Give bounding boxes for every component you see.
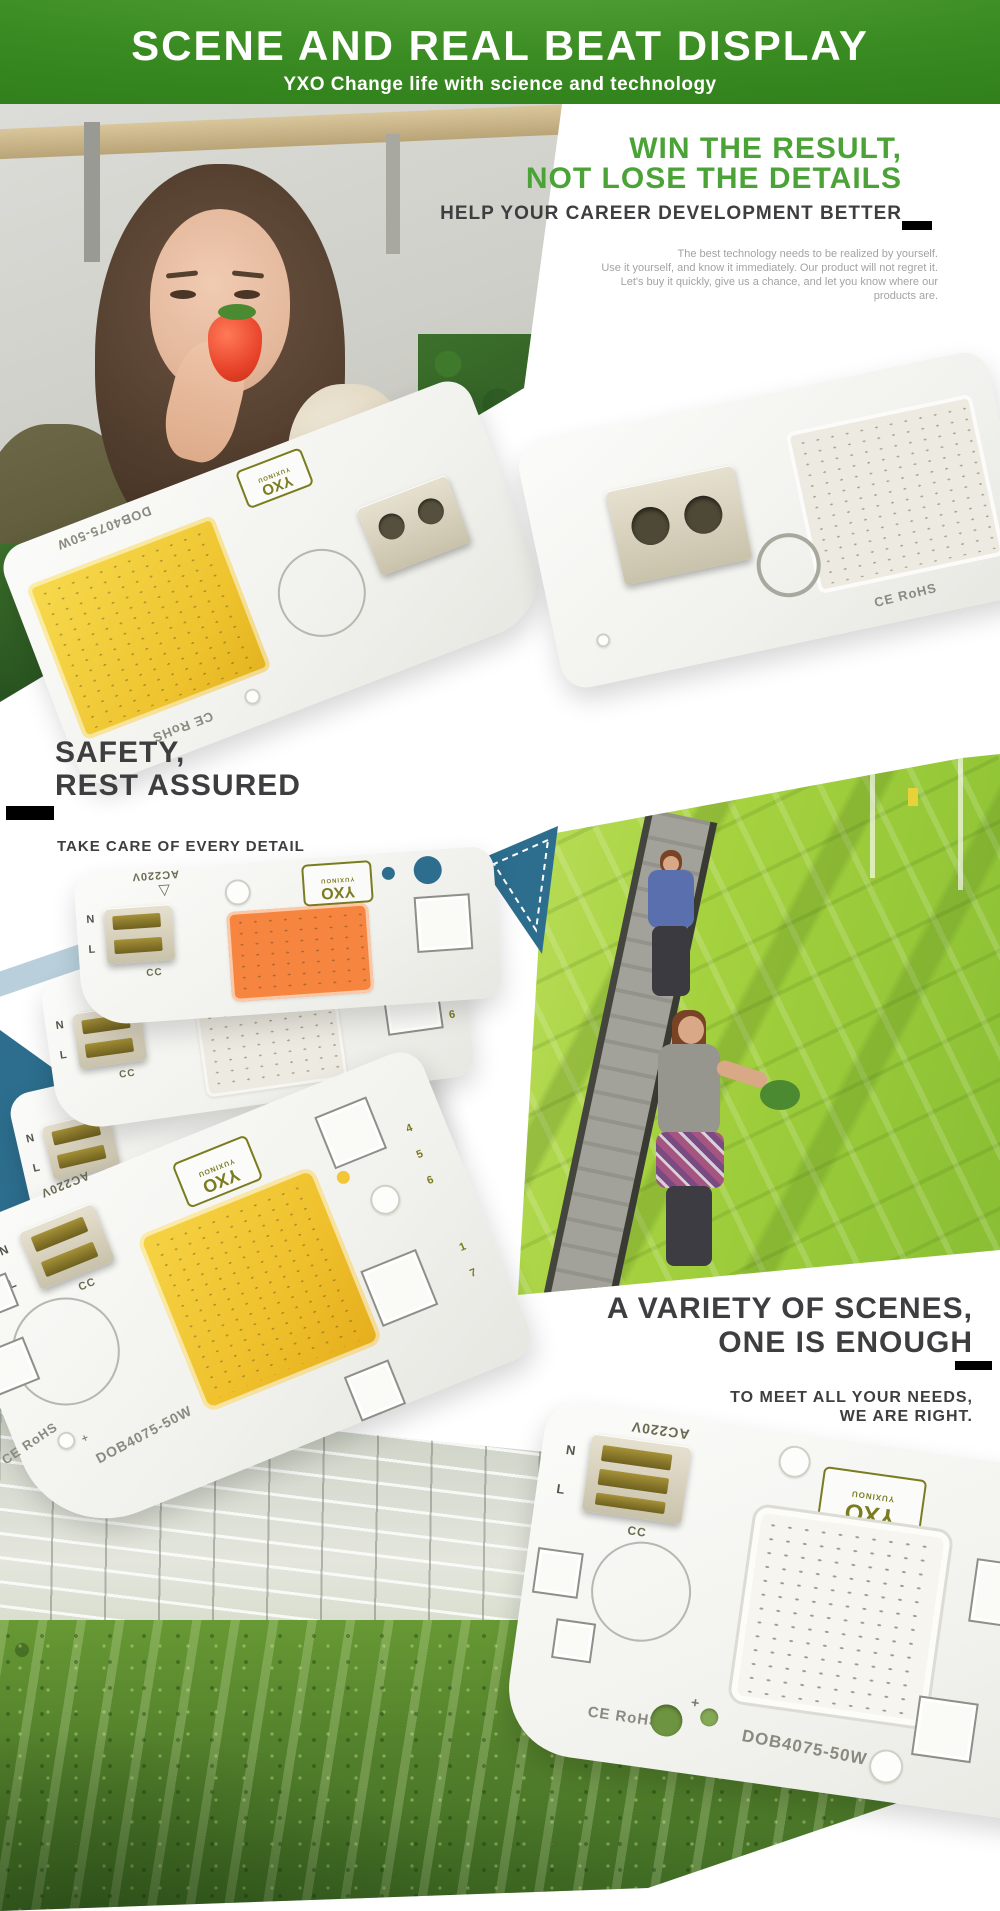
terminal-hole	[414, 495, 448, 529]
greenhouse-post	[386, 134, 400, 254]
cc-label: CC	[627, 1523, 648, 1540]
led-dot-grid	[36, 525, 261, 730]
terminal-slot	[112, 913, 161, 930]
l-label: L	[59, 1049, 67, 1062]
greenhouse-post	[84, 122, 100, 262]
regulator-mark: ▽	[158, 880, 171, 899]
n-label: N	[25, 1132, 35, 1145]
safety-headline: SAFETY, REST ASSURED	[55, 736, 301, 802]
solder-pad	[551, 1618, 596, 1663]
stacked-module-1: N L AC220V ▽ CC YXO YUXINOU	[73, 846, 503, 1027]
terminal-block	[582, 1433, 692, 1524]
cob-patch-orange	[226, 902, 374, 1002]
l-label: L	[556, 1481, 566, 1497]
underscore-accent	[955, 1361, 992, 1370]
variety-headline-line2: ONE IS ENOUGH	[607, 1326, 973, 1360]
cc-label: CC	[146, 967, 163, 979]
top-banner: SCENE AND REAL BEAT DISPLAY YXO Change l…	[0, 0, 1000, 104]
component-footprint-circle	[265, 536, 379, 650]
variety-tagline-block: TO MEET ALL YOUR NEEDS, WE ARE RIGHT.	[730, 1388, 973, 1426]
through-hole-showing-field	[699, 1707, 719, 1727]
variety-tagline-line1: TO MEET ALL YOUR NEEDS,	[730, 1388, 973, 1407]
hero-headline: WIN THE RESULT, NOT LOSE THE DETAILS	[526, 134, 902, 194]
terminal-hole	[628, 503, 673, 548]
variety-headline-line1: A VARIETY OF SCENES,	[607, 1292, 973, 1326]
model-label: DOB4075-50W	[740, 1726, 869, 1770]
gardener-shirt	[648, 870, 694, 928]
gardener-pants	[666, 1186, 712, 1266]
terminal-hole	[375, 510, 409, 544]
eye	[234, 290, 260, 299]
terminal-slot	[601, 1445, 673, 1471]
safety-headline-line1: SAFETY,	[55, 736, 301, 769]
mounting-hole	[595, 632, 612, 649]
component-footprint-circle	[585, 1535, 698, 1648]
paragraph-line: products are.	[601, 289, 938, 303]
cc-label: CC	[118, 1068, 136, 1081]
terminal-slot	[85, 1038, 134, 1059]
terminal-hole	[681, 492, 726, 537]
safety-tagline: TAKE CARE OF EVERY DETAIL	[57, 838, 305, 855]
variety-tagline-line2: WE ARE RIGHT.	[730, 1407, 973, 1426]
banner-title: SCENE AND REAL BEAT DISPLAY	[0, 22, 1000, 70]
n-label: N	[565, 1442, 576, 1458]
solder-pad	[414, 893, 474, 953]
plus-mark: +	[690, 1694, 700, 1711]
n-label: N	[86, 913, 95, 926]
hero-headline-line2: NOT LOSE THE DETAILS	[526, 164, 902, 194]
through-hole-showing-field	[648, 1702, 684, 1738]
paragraph-line: The best technology needs to be realized…	[601, 247, 938, 261]
terminal-block	[605, 465, 752, 586]
cert-label: CE RoHS	[873, 580, 939, 610]
yellow-marker-flag	[908, 788, 918, 806]
paragraph-line: Use it yourself, and know it immediately…	[601, 261, 938, 275]
solder-pad	[911, 1695, 979, 1763]
hero-paragraph: The best technology needs to be realized…	[601, 247, 938, 303]
underscore-accent	[902, 221, 932, 230]
terminal-slot	[114, 937, 163, 954]
gardener-pants	[652, 926, 690, 996]
hero-subheadline: HELP YOUR CAREER DEVELOPMENT BETTER	[440, 203, 902, 225]
led-dot-grid	[233, 909, 368, 996]
cc-label: CC	[77, 1276, 98, 1294]
greenhouse-pole	[870, 758, 875, 878]
plaid-wrap	[656, 1132, 724, 1188]
l-label: L	[32, 1162, 41, 1175]
hole-showing-teal	[413, 855, 443, 885]
terminal-slot	[57, 1145, 107, 1169]
terminal-block	[104, 904, 176, 965]
n-label: N	[55, 1019, 65, 1032]
l-label: L	[88, 943, 96, 955]
mounting-hole	[224, 879, 252, 907]
pin-numbers: 4 5 6	[402, 1121, 439, 1190]
led-dot-grid	[149, 1179, 370, 1400]
hero-headline-line1: WIN THE RESULT,	[526, 134, 902, 164]
solder-pad	[314, 1096, 387, 1169]
hole-showing-yellow	[335, 1169, 352, 1186]
voltage-label-mirrored: AC220V	[131, 867, 179, 882]
safety-headline-line2: REST ASSURED	[55, 769, 301, 802]
eye	[170, 290, 196, 299]
led-dot-grid	[795, 403, 996, 585]
terminal-block	[356, 475, 471, 577]
led-module-white: CE RoHS	[514, 348, 1000, 692]
terminal-block	[18, 1203, 115, 1290]
terminal-slot	[598, 1469, 670, 1495]
pin-numbers: 1 7	[455, 1239, 482, 1282]
hole-showing-teal	[381, 866, 395, 880]
gardener-head	[678, 1016, 704, 1044]
paragraph-line: Let's buy it quickly, give us a chance, …	[601, 275, 938, 289]
plus-mark: +	[80, 1431, 91, 1445]
mounting-hole	[242, 686, 263, 707]
solder-pad	[532, 1547, 584, 1599]
seedling-in-hand	[760, 1080, 800, 1110]
gardener-shirt	[658, 1044, 720, 1136]
mounting-hole	[777, 1444, 813, 1480]
brand-stamp: YXO YUXINOU	[301, 860, 374, 907]
model-label: DOB4075-50W	[93, 1402, 195, 1466]
solder-pad	[968, 1558, 1000, 1630]
mounting-hole	[867, 1747, 905, 1785]
strawberry-leaf	[218, 304, 256, 320]
led-dot-grid	[741, 1517, 940, 1716]
variety-headline-block: A VARIETY OF SCENES, ONE IS ENOUGH	[607, 1292, 973, 1360]
solder-pad	[344, 1359, 406, 1421]
greenhouse-pole	[958, 750, 963, 890]
promo-poster: SCENE AND REAL BEAT DISPLAY YXO Change l…	[0, 0, 1000, 1911]
terminal-slot	[595, 1493, 666, 1515]
underscore-accent	[6, 806, 54, 820]
n-label: N	[0, 1242, 10, 1258]
brand-stamp: YXO YUXINOU	[235, 447, 315, 509]
mounting-hole	[366, 1180, 405, 1219]
banner-subtitle: YXO Change life with science and technol…	[0, 74, 1000, 96]
